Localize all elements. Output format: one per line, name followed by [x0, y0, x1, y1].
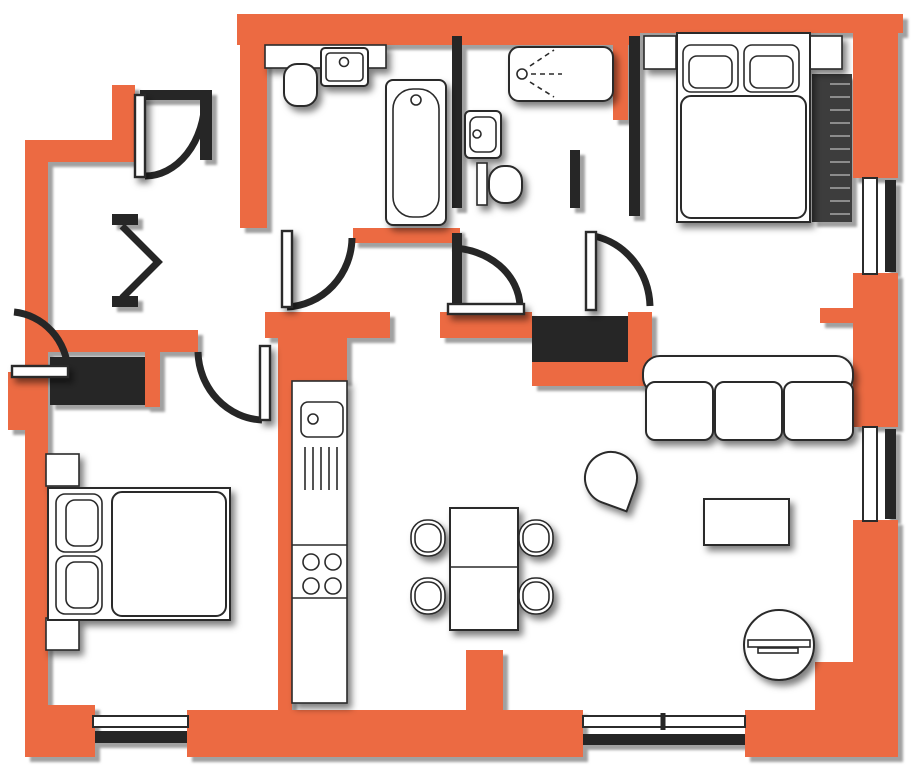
room-dining	[411, 508, 553, 630]
partition-closet-stub-a	[112, 214, 138, 225]
wall-bathroom-bottom	[353, 228, 460, 243]
window-bedroom2	[93, 716, 188, 727]
wall-left-step	[8, 372, 25, 430]
wall-bathroom-left	[240, 36, 267, 228]
sill-window-living-bottom	[583, 734, 745, 745]
closet-bifold-door	[122, 226, 158, 298]
wall-divider-stub	[820, 308, 853, 323]
wall-right-top	[853, 33, 898, 178]
wall-bottom-right	[745, 710, 898, 757]
bathroom-door-arc	[287, 238, 352, 307]
dining-table-icon	[450, 508, 518, 630]
room-living	[578, 356, 853, 680]
dining-chair-3	[519, 520, 553, 556]
wall-hall-nook-under	[532, 362, 652, 386]
hall-left-door-leaf	[12, 366, 68, 377]
window-living-right	[863, 427, 877, 521]
armchair-icon	[578, 445, 645, 512]
partition-bath-shower	[452, 36, 462, 208]
sofa-cushion-3	[784, 382, 853, 440]
wall-hall-bottom-left	[265, 312, 390, 338]
dining-chair-4	[519, 578, 553, 614]
bedroom2-nightstand-top	[46, 454, 79, 486]
wall-bedroom2-inner	[145, 352, 160, 407]
bedroom2-nightstand-bottom	[46, 618, 79, 650]
dining-chair-1	[411, 520, 445, 556]
sill-window-bedroom2	[95, 731, 187, 743]
room-kitchen	[292, 381, 347, 703]
wardrobe-hall	[532, 316, 628, 362]
nightstand-right	[810, 36, 842, 69]
wall-shower-right	[613, 36, 628, 120]
shower-toilet-cistern	[477, 163, 487, 205]
partition-masterbed-left	[629, 36, 640, 216]
wall-stub-living	[466, 650, 503, 710]
round-table-shelf-2	[758, 648, 798, 653]
bedroom2-pillow-2-inner	[66, 562, 98, 608]
furniture	[46, 33, 853, 703]
room-bedroom2	[46, 454, 230, 650]
toilet-icon	[284, 64, 317, 106]
master-bedroom-door-leaf	[586, 232, 596, 310]
wall-top-right	[640, 14, 903, 33]
bedroom2-mattress	[112, 492, 226, 616]
nightstand-left	[644, 36, 676, 69]
wall-bottom-step	[815, 662, 853, 710]
round-table-shelf	[748, 640, 810, 647]
window-master-bedroom	[863, 178, 877, 274]
entry-door-arc	[145, 100, 205, 176]
wall-topleft-vertical	[112, 85, 135, 162]
wall-right-mid	[853, 273, 898, 427]
room-bathroom	[265, 45, 446, 225]
sill-window-master	[885, 180, 896, 272]
wall-topleft-horizontal	[25, 140, 115, 162]
wall-left	[25, 140, 48, 757]
master-pillow-2-inner	[750, 56, 793, 88]
living-door-arc	[452, 248, 520, 306]
dining-chair-2	[411, 578, 445, 614]
floor-plan	[0, 0, 912, 774]
living-door-leaf	[448, 304, 524, 314]
entry-door-leaf	[135, 95, 145, 177]
bedroom2-door-leaf	[260, 346, 270, 420]
wall-bedroom2-top	[48, 330, 198, 352]
wall-bottom-mid	[187, 710, 583, 757]
wall-top-left	[237, 14, 640, 45]
master-bedroom-door-arc	[594, 236, 650, 306]
partition-closet-top	[140, 90, 212, 100]
master-mattress	[681, 96, 806, 218]
bedroom2-pillow-1-inner	[66, 500, 98, 546]
sofa-cushion-1	[646, 382, 713, 440]
sofa-cushion-2	[715, 382, 782, 440]
partition-shower-inner	[570, 150, 580, 208]
room-shower	[465, 47, 613, 205]
wall-kitchen-left	[278, 381, 292, 710]
sill-window-living-right	[885, 429, 896, 519]
shower-toilet-icon	[489, 166, 522, 203]
bathroom-door-leaf	[282, 231, 292, 307]
wall-kitchen-top	[278, 338, 347, 381]
coffee-table-icon	[704, 499, 789, 545]
bedroom2-door-arc	[198, 352, 262, 420]
master-pillow-1-inner	[689, 56, 732, 88]
wall-hall-bottom-right	[440, 312, 532, 338]
